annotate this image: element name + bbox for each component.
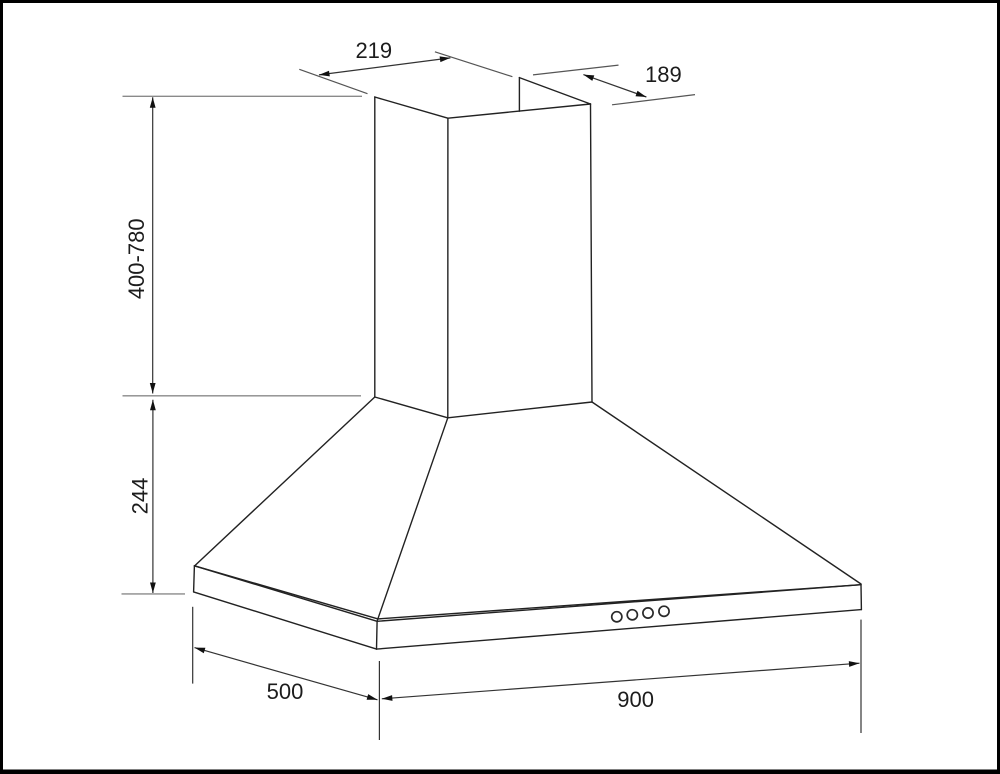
svg-text:900: 900 xyxy=(617,687,654,712)
svg-text:244: 244 xyxy=(128,478,153,515)
svg-text:189: 189 xyxy=(645,62,682,87)
svg-text:500: 500 xyxy=(267,679,304,704)
svg-text:219: 219 xyxy=(355,38,392,63)
svg-text:400-780: 400-780 xyxy=(124,218,149,299)
